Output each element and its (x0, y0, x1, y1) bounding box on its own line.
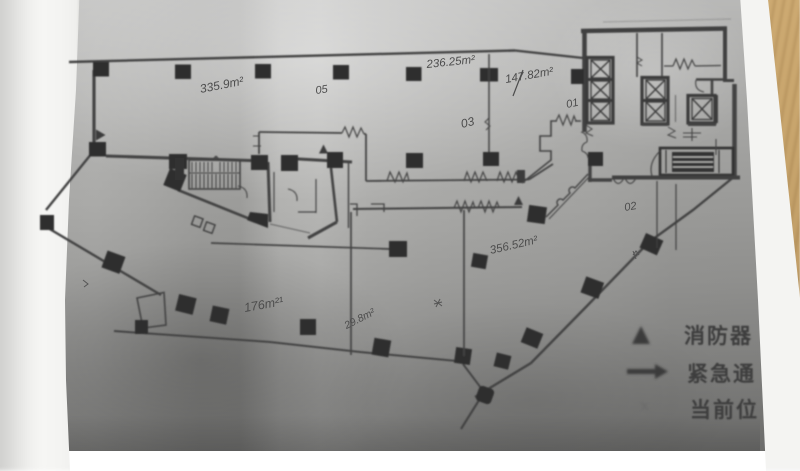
svg-text:356.52m²: 356.52m² (489, 234, 540, 257)
svg-text:236.25m²: 236.25m² (425, 54, 477, 71)
svg-text:176m²¹: 176m²¹ (243, 294, 284, 315)
svg-text:01: 01 (565, 97, 579, 111)
svg-text:02: 02 (623, 200, 637, 214)
svg-text:消防器: 消防器 (684, 324, 753, 348)
svg-text:147.82m²: 147.82m² (504, 66, 555, 86)
svg-text:紧急通: 紧急通 (687, 362, 756, 386)
svg-text:335.9m²: 335.9m² (199, 74, 246, 96)
svg-text:29.8m²: 29.8m² (342, 306, 378, 332)
svg-text:03: 03 (459, 114, 476, 131)
svg-text:05: 05 (315, 83, 330, 97)
svg-text:当前位: 当前位 (690, 398, 759, 422)
